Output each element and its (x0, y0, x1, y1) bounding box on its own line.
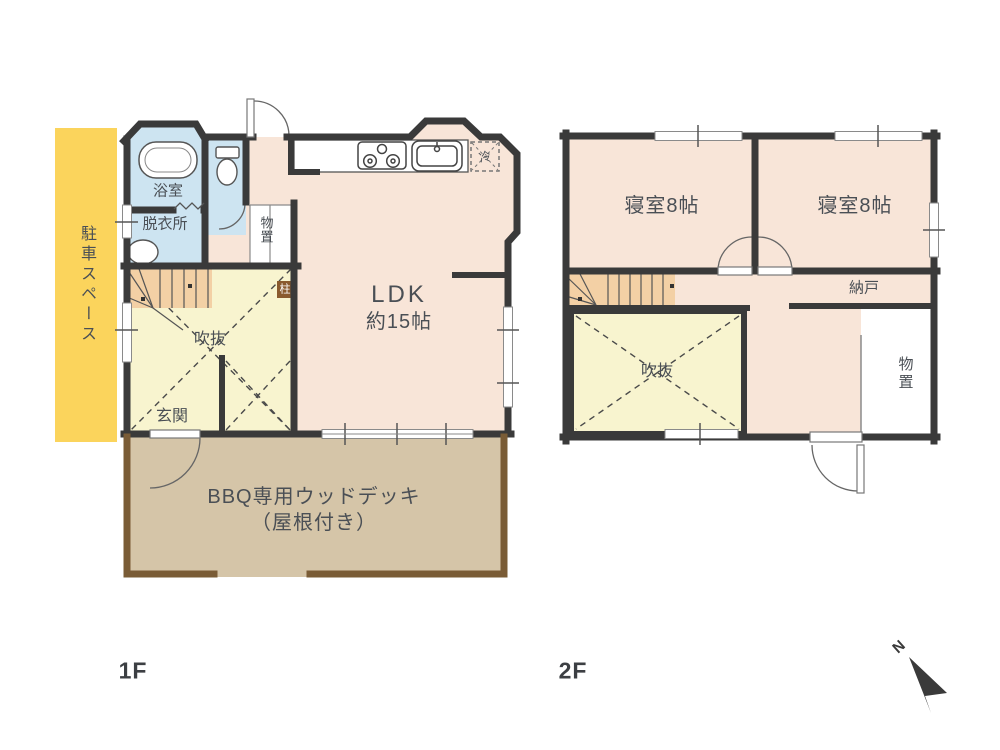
stairs-2f (566, 274, 675, 305)
deck-label-line2: （屋根付き） (251, 513, 377, 533)
entrance-label: 玄関 (156, 409, 188, 425)
void-2f-label: 吹抜 (641, 364, 673, 380)
deck-label-line1: BBQ専用ウッドデッキ (207, 487, 420, 507)
floorplan-drawing (0, 0, 1000, 750)
floor1-tag: 1F (119, 660, 148, 683)
dressing-label: 脱衣所 (142, 217, 187, 232)
void-1f-label: 吹抜 (194, 332, 226, 348)
hall-door-leaf (857, 445, 864, 493)
entry-door-arc (254, 101, 289, 136)
hall-door-opening (810, 432, 862, 442)
storage-2f-label: 物置 (898, 356, 913, 392)
toilet-icon (216, 147, 239, 185)
kitchen-counter (294, 140, 468, 172)
hall-door-arc (812, 445, 858, 491)
floorplan-page: 駐車スペース 浴室 脱衣所 物置 LDK 約15帖 吹抜 玄関 柱 冷 BBQ専… (0, 0, 1000, 750)
bath-label: 浴室 (153, 184, 183, 199)
entry-door-leaf (247, 99, 254, 137)
pillar-label: 柱 (280, 285, 291, 296)
ldk-label: LDK (371, 283, 427, 307)
closet-2f-label: 納戸 (849, 281, 879, 296)
bedroom-left-label: 寝室8帖 (624, 196, 699, 216)
ldk-size-label: 約15帖 (366, 312, 432, 332)
bathtub-icon (139, 142, 197, 178)
floor2-tag: 2F (559, 660, 588, 683)
bedroom-left-door-leaf (718, 267, 752, 275)
storage-1f-label: 物置 (260, 216, 273, 244)
washbasin-icon (128, 240, 158, 264)
floor2-plan (563, 125, 945, 493)
deck-door-leaf (150, 430, 200, 438)
bedroom-right-door-leaf (758, 267, 792, 275)
parking-label: 駐車スペース (78, 225, 94, 345)
north-arrow-icon (909, 657, 947, 713)
bedroom-right-label: 寝室8帖 (817, 196, 892, 216)
